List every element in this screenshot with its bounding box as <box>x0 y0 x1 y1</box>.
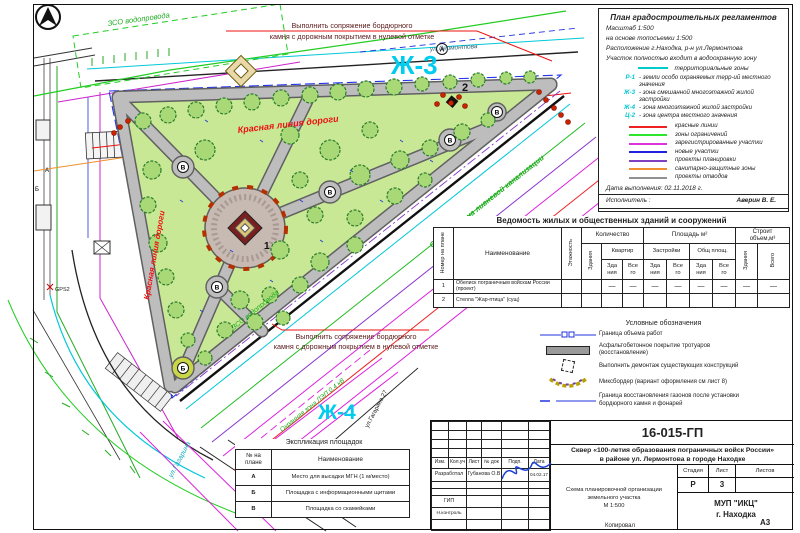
buildings-table-section: Ведомость жилых и общественных зданий и … <box>433 216 790 308</box>
stage-header-row: Стадия Лист Листов <box>678 465 794 478</box>
symbols-legend: Условные обозначения Граница объема рабо… <box>537 320 790 424</box>
legend-item: Граница объема работ <box>537 330 790 340</box>
work-boundary-symbol <box>537 330 599 340</box>
annotation-top-line2: камня с дорожным покрытием в нулевой отм… <box>270 32 435 41</box>
svg-text:В: В <box>181 165 186 172</box>
legend-item: Миксбордер (вариант оформления см лист 8… <box>537 375 790 390</box>
stage-value: Р <box>678 478 709 492</box>
legend-item: красные линии <box>629 123 788 130</box>
svg-text:В: В <box>448 138 453 145</box>
asphalt-symbol <box>537 346 599 355</box>
marker-2-label: 2 <box>462 82 468 94</box>
legend-item: Выполнить демонтаж существующих конструк… <box>537 360 790 372</box>
signature <box>499 457 555 483</box>
table-row: В Площадка со скамейками <box>236 502 410 518</box>
zone-item: Ж-3- зона смешанной многоэтажной жилой з… <box>613 89 784 103</box>
explication-title: Экспликация площадок <box>235 439 413 446</box>
legend-item: зарегистрированные участки <box>629 140 788 147</box>
svg-text:Б: Б <box>181 366 186 373</box>
legend-item: Асфальтобетонное покрытие тротуаров (вос… <box>537 343 790 357</box>
zone-item: Р-1- земли особо охраняемых терр-ий мест… <box>613 74 784 88</box>
cyan-line-icon <box>638 67 668 69</box>
explication-table: № на плане Наименование А Место для выса… <box>235 449 410 518</box>
format-label: А3 <box>760 518 770 527</box>
gip-row: ГИП <box>432 496 550 508</box>
title-block: Изм. Кол.уч Лист № док Подп. Дата Разраб… <box>430 420 793 530</box>
drawing-sheet: А В В В В В Б А Б Выполнить сопряжение б… <box>0 0 800 533</box>
legend-item: зоны ограничений <box>629 132 788 139</box>
project-title: Сквер «100-летия образования пограничных… <box>551 445 794 465</box>
zso-label-top: ЗСО водопровода <box>107 10 170 28</box>
legend-item: санитарно-защитные зоны <box>629 166 788 173</box>
date-line: Дата выполнения: 02.11.2018 г. <box>606 185 788 192</box>
scheme-title: Схема планировочной организации земельно… <box>551 465 678 530</box>
zone-label-zh4: Ж-4 <box>317 401 356 424</box>
annotation-mid-line2: камня с дорожным покрытием в нулевой отм… <box>274 342 439 351</box>
header-row: № на плане Наименование <box>236 450 410 470</box>
regulations-panel: План градостроительных регламентов Масшт… <box>598 8 789 212</box>
doc-number: 16-015-ГП <box>551 421 794 445</box>
symbols-legend-title: Условные обозначения <box>537 320 790 327</box>
explication-section: Экспликация площадок № на плане Наименов… <box>235 439 413 518</box>
lawn-restore-symbol <box>537 397 599 405</box>
stage-values-row: Р 3 <box>678 478 794 493</box>
svg-text:В: В <box>495 110 500 117</box>
header-row: Номер на плане Наименование Этажность Ко… <box>434 228 790 244</box>
title-block-right: 16-015-ГП Сквер «100-летия образования п… <box>550 421 794 531</box>
ncontrol-row: Н.контроль <box>432 508 550 520</box>
legend-item: проекты отводов <box>629 174 788 181</box>
buildings-table-title: Ведомость жилых и общественных зданий и … <box>433 216 790 225</box>
territorial-zones-title: территориальные зоны <box>599 65 788 72</box>
executor-name: Аверин В. Е. <box>736 197 776 207</box>
buildings-table: Номер на плане Наименование Этажность Ко… <box>433 227 790 308</box>
sheet-value: 3 <box>709 478 736 492</box>
gps-label: GPS2 <box>55 287 70 293</box>
north-arrow-icon <box>36 5 60 29</box>
legend-item: Граница восстановления газонов после уст… <box>537 393 790 407</box>
annotation-mid-line1: Выполнить сопряжение бордюрного <box>295 332 416 341</box>
legend-item: проекты планировки <box>629 157 788 164</box>
mixborder-symbol <box>537 375 599 390</box>
regulations-scale: Масштаб 1:500 <box>606 25 788 33</box>
table-row: 1 Обелиск пограничным войскам России (пр… <box>434 280 790 294</box>
table-row: Б Площадка с информационными щитами <box>236 486 410 502</box>
annotation-top-line1: Выполнить сопряжение бордюрного <box>291 21 412 30</box>
checked-name: Мосевицкий А. А. <box>720 211 776 212</box>
legend-item: новые участки <box>629 149 788 156</box>
marker-1-label: 1 <box>264 241 270 252</box>
svg-text:В: В <box>215 285 220 292</box>
table-row: А Место для высадки МГН (1 м/место) <box>236 470 410 486</box>
organization: МУП "ИКЦ" г. Находка <box>678 493 794 520</box>
svg-text:А: А <box>45 168 49 174</box>
executor-box: Исполнитель :Аверин В. Е. Проверено :Мос… <box>599 194 788 212</box>
street-lermontova-label: ул.Лермонтова <box>429 43 478 53</box>
demolition-symbol <box>537 360 599 372</box>
zone-label-zh3: Ж-3 <box>390 50 438 80</box>
copied-label: Копировал <box>560 523 680 529</box>
table-row: 2 Стелла "Жар-птица" (сущ) <box>434 294 790 308</box>
svg-text:Б: Б <box>35 187 39 193</box>
svg-text:В: В <box>328 190 333 197</box>
zone-item: Ж-4- зона многоэтажной жилой застройки <box>613 104 784 111</box>
regulations-title: План градостроительных регламентов <box>601 13 786 22</box>
zone-item: Ц-2- зона центра местного значения <box>613 112 784 119</box>
